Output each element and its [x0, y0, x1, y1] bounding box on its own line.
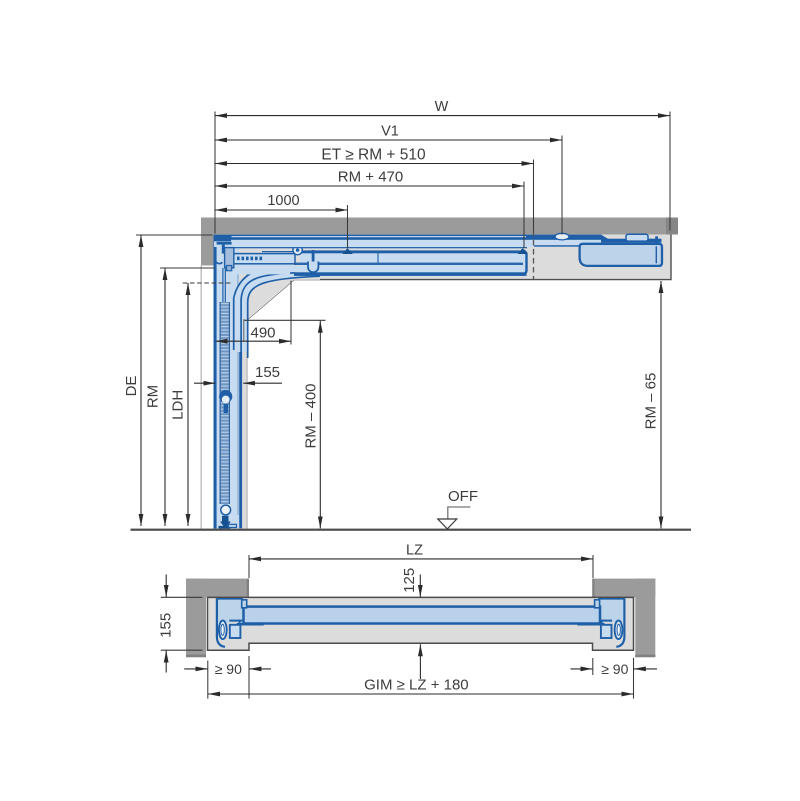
svg-text:RM: RM	[145, 385, 162, 408]
svg-text:RM – 400: RM – 400	[303, 383, 320, 448]
svg-text:490: 490	[250, 325, 275, 342]
svg-text:ET ≥ RM + 510: ET ≥ RM + 510	[321, 146, 426, 163]
svg-text:RM – 65: RM – 65	[643, 373, 660, 430]
svg-text:V1: V1	[381, 124, 399, 140]
svg-text:1000: 1000	[267, 193, 299, 209]
svg-text:125: 125	[401, 568, 418, 593]
svg-text:OFF: OFF	[448, 488, 478, 505]
svg-text:155: 155	[158, 613, 175, 638]
svg-text:LZ: LZ	[406, 543, 423, 559]
svg-text:LDH: LDH	[170, 390, 187, 420]
svg-text:GIM ≥ LZ + 180: GIM ≥ LZ + 180	[364, 677, 469, 694]
svg-text:≥ 90: ≥ 90	[601, 661, 628, 677]
svg-text:≥ 90: ≥ 90	[215, 661, 242, 677]
svg-text:W: W	[435, 99, 449, 115]
svg-text:DE: DE	[123, 376, 140, 397]
svg-text:155: 155	[255, 364, 280, 381]
svg-text:RM + 470: RM + 470	[338, 169, 403, 186]
